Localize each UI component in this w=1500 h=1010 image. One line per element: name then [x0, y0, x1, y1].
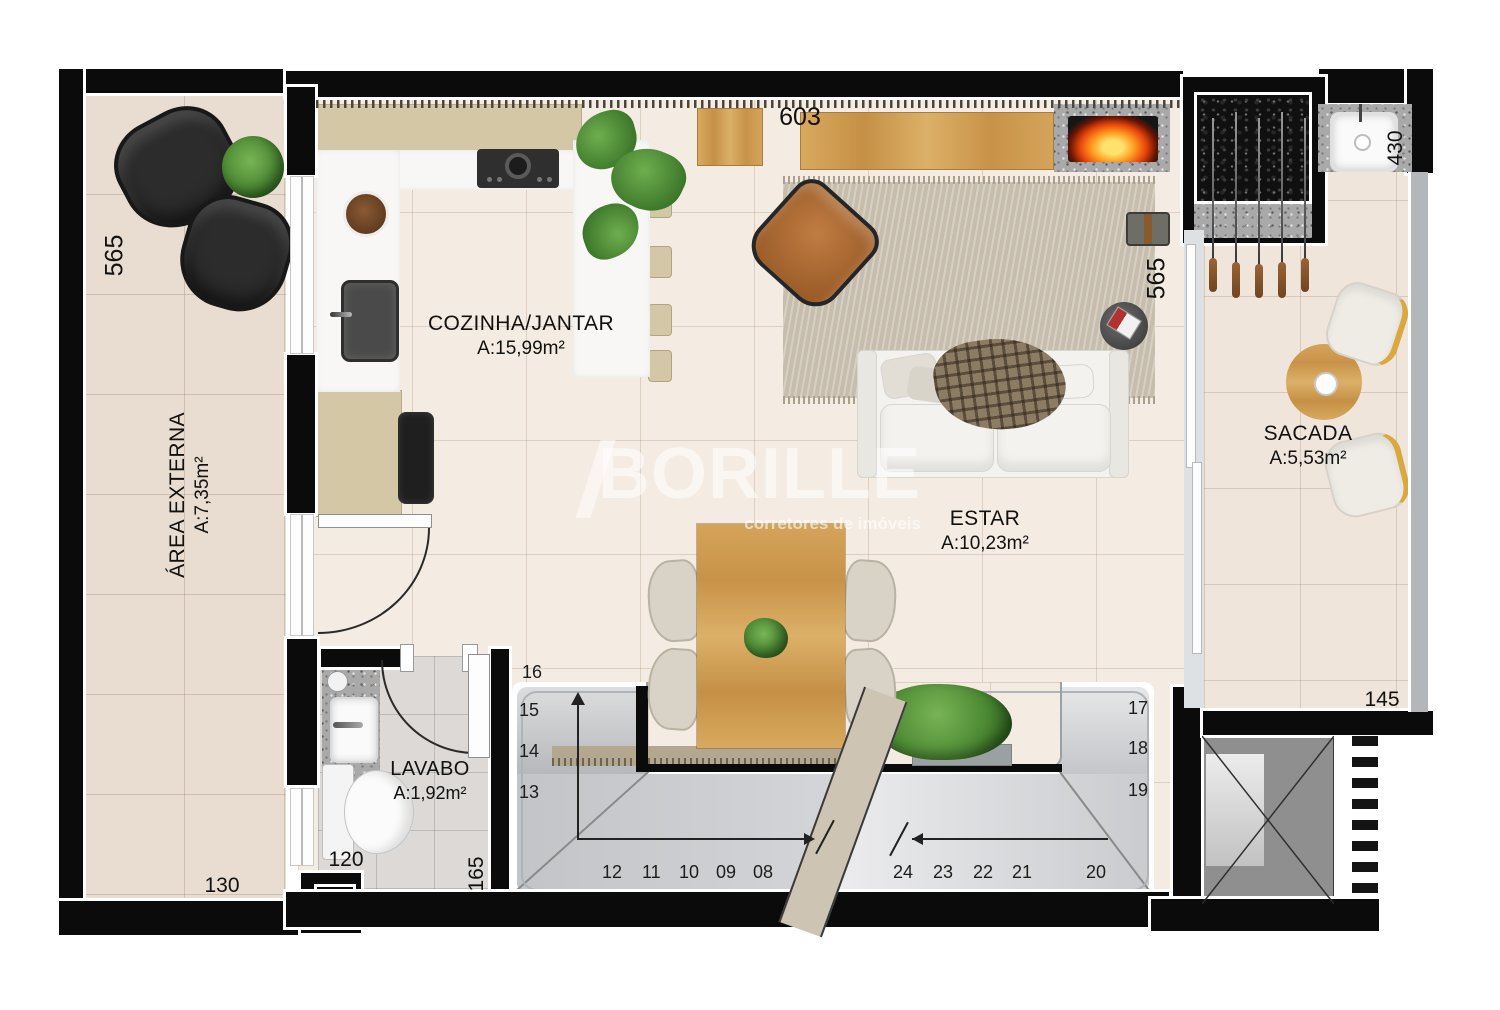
kitchen-faucet-icon	[330, 312, 352, 317]
floor-edge-strip	[552, 746, 882, 766]
bathroom-name: LAVABO	[365, 756, 495, 782]
tv-credenza	[697, 108, 763, 166]
room-label-living: ESTAR A:10,23m²	[900, 505, 1070, 557]
window-kitchen	[290, 176, 314, 354]
skewer-handle-icon	[1301, 258, 1309, 292]
island-stool-icon	[648, 246, 672, 278]
stair-step-number: 24	[893, 862, 913, 883]
glass-door-panel	[1186, 244, 1196, 468]
wall-bottom-main	[283, 889, 1172, 930]
cooktop-knob-icon	[537, 177, 542, 182]
sofa-armrest	[1109, 350, 1129, 478]
kitchen-area: A:15,99m²	[421, 337, 621, 362]
stair-step-number: 17	[1128, 698, 1148, 719]
island-stool-icon	[648, 304, 672, 336]
wall-trim-ticks	[316, 100, 1184, 108]
skewer-icon	[1281, 112, 1283, 272]
balcony-area: A:5,53m²	[1238, 447, 1378, 472]
wall-outdoor-top	[56, 66, 298, 96]
floor-plan-canvas: 16 15 14 13 12 11 10 09 08 24 23 22 21 2…	[0, 0, 1500, 1010]
glass-door-panel	[1192, 462, 1202, 654]
sofa-armrest	[857, 350, 877, 478]
table-centerpiece-icon	[744, 618, 788, 658]
stair-step-number: 14	[519, 741, 539, 762]
outdoor-area: A:7,35m²	[191, 375, 216, 615]
stair-step-number: 18	[1128, 738, 1148, 759]
wall-balcony-bottom	[1200, 708, 1436, 738]
outdoor-plant-icon	[222, 136, 284, 198]
skewer-icon	[1258, 118, 1260, 274]
kitchen-door-leaf	[318, 514, 432, 528]
balcony-name: SACADA	[1238, 420, 1378, 447]
wall-divider-upper	[284, 84, 318, 178]
room-label-kitchen: COZINHA/JANTAR A:15,99m²	[421, 310, 621, 362]
wall-outdoor-bottom	[56, 898, 312, 938]
arrow-head-icon	[804, 833, 815, 845]
stair-step-number: 21	[1012, 862, 1032, 883]
cooktop-knob-icon	[497, 177, 502, 182]
skewer-handle-icon	[1255, 264, 1263, 298]
dim-kitchen-top: 603	[770, 103, 830, 132]
bathroom-sink-icon	[330, 697, 378, 763]
wall-bathroom-left	[284, 636, 320, 788]
stair-guide-line	[912, 838, 1108, 840]
kitchen-sink-icon	[341, 280, 399, 362]
wall-divider-mid	[284, 352, 318, 516]
dim-living-right: 565	[1143, 239, 1172, 319]
stair-step-number: 15	[519, 700, 539, 721]
elevator-cross-icon	[1202, 736, 1334, 904]
dim-balcony-bottom: 145	[1352, 688, 1412, 712]
bathroom-door-leaf	[468, 654, 490, 758]
rug-fringe	[783, 176, 1155, 184]
stair-step-number: 23	[933, 862, 953, 883]
toilet-paper-icon	[327, 671, 348, 692]
stair-step-number: 11	[642, 862, 661, 883]
stair-step-number: 19	[1128, 780, 1148, 801]
kitchen-name: COZINHA/JANTAR	[421, 310, 621, 337]
bathroom-area: A:1,92m²	[365, 782, 495, 805]
stair-step-number: 09	[716, 862, 736, 883]
bowl-icon	[343, 191, 389, 237]
dim-balcony-sink: 430	[1384, 108, 1408, 188]
living-name: ESTAR	[900, 505, 1070, 532]
cooktop-knob-icon	[487, 177, 492, 182]
shaft-hatch-strip	[1352, 736, 1378, 896]
island-stool-icon	[648, 350, 672, 382]
stair-direction-arrow	[577, 704, 579, 840]
bathroom-faucet-icon	[333, 722, 363, 728]
arrow-head-icon	[912, 833, 923, 845]
balcony-sink-drain-icon	[1354, 134, 1371, 151]
balcony-table-knob	[1314, 372, 1338, 396]
stair-step-number: 20	[1086, 862, 1106, 883]
skewer-handle-icon	[1232, 262, 1240, 298]
kitchen-lower-cabinet	[316, 390, 402, 517]
stair-step-number: 16	[522, 662, 542, 683]
stair-step-number: 08	[753, 862, 773, 883]
outdoor-name: ÁREA EXTERNA	[164, 375, 191, 615]
living-area: A:10,23m²	[900, 532, 1070, 557]
window-bathroom	[290, 788, 314, 866]
kitchen-appliance-icon	[398, 412, 434, 504]
cooktop-burner-icon	[505, 153, 531, 179]
dim-outdoor-bottom: 130	[192, 874, 252, 898]
wall-right-lower	[1170, 684, 1204, 904]
fireplace-icon	[1068, 116, 1158, 162]
wall-top-main	[283, 68, 1186, 100]
room-label-bathroom: LAVABO A:1,92m²	[365, 756, 495, 805]
window-service	[290, 514, 314, 636]
skewer-handle-icon	[1278, 262, 1286, 298]
skewer-icon	[1235, 112, 1237, 272]
dim-bathroom-width: 120	[318, 848, 374, 872]
room-label-balcony: SACADA A:5,53m²	[1238, 420, 1378, 472]
skewer-icon	[1304, 118, 1306, 268]
stair-guide-line	[578, 838, 812, 840]
stair-step-number: 22	[973, 862, 993, 883]
skewer-icon	[1212, 118, 1214, 268]
skewer-handle-icon	[1209, 258, 1217, 292]
stair-step-number: 13	[519, 782, 539, 803]
arrow-head-icon	[571, 692, 585, 705]
stair-step-number: 10	[679, 862, 699, 883]
void-edge-left	[636, 686, 648, 768]
dim-outdoor-left: 565	[101, 216, 130, 296]
wall-left	[56, 66, 86, 912]
stair-step-number: 12	[602, 862, 622, 883]
cooktop-knob-icon	[547, 177, 552, 182]
dim-bathroom-length: 165	[465, 834, 489, 914]
room-label-outdoor: ÁREA EXTERNA A:7,35m²	[164, 375, 216, 615]
balcony-faucet-icon	[1359, 104, 1362, 122]
balcony-railing	[1408, 172, 1428, 712]
tv-credenza	[800, 112, 1054, 170]
